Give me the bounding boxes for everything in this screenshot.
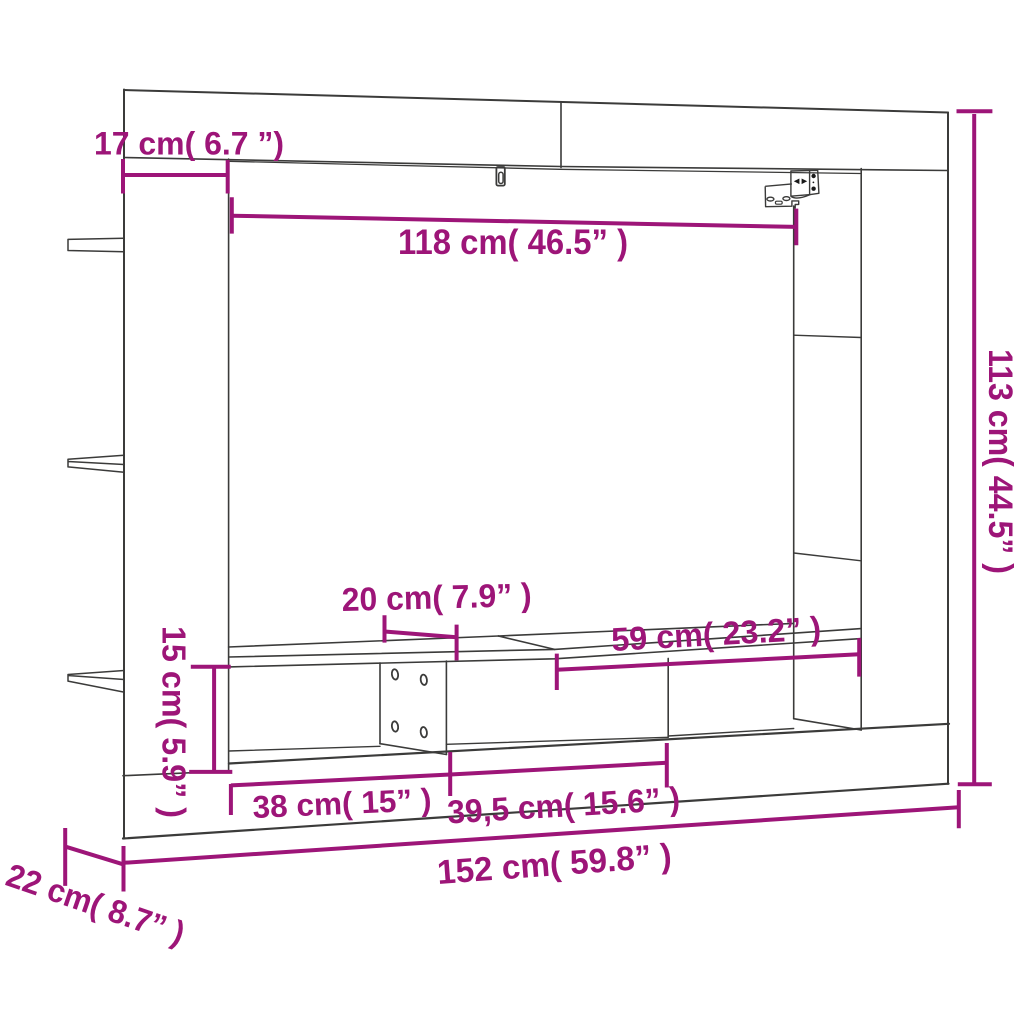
svg-text:38 cm( 15” ): 38 cm( 15” ) bbox=[252, 781, 432, 825]
svg-text:17 cm( 6.7 ”): 17 cm( 6.7 ”) bbox=[94, 126, 284, 162]
svg-text:20 cm( 7.9” ): 20 cm( 7.9” ) bbox=[341, 576, 532, 618]
svg-text:59 cm( 23.2” ): 59 cm( 23.2” ) bbox=[610, 609, 822, 658]
svg-text:15 cm( 5.9” ): 15 cm( 5.9” ) bbox=[156, 626, 193, 818]
svg-text:113 cm( 44.5” ): 113 cm( 44.5” ) bbox=[981, 349, 1019, 574]
svg-text:22 cm( 8.7” ): 22 cm( 8.7” ) bbox=[2, 856, 190, 952]
svg-text:39,5 cm( 15.6” ): 39,5 cm( 15.6” ) bbox=[446, 780, 681, 831]
svg-text:152 cm( 59.8” ): 152 cm( 59.8” ) bbox=[436, 837, 673, 892]
svg-text:118 cm( 46.5” ): 118 cm( 46.5” ) bbox=[398, 223, 628, 262]
